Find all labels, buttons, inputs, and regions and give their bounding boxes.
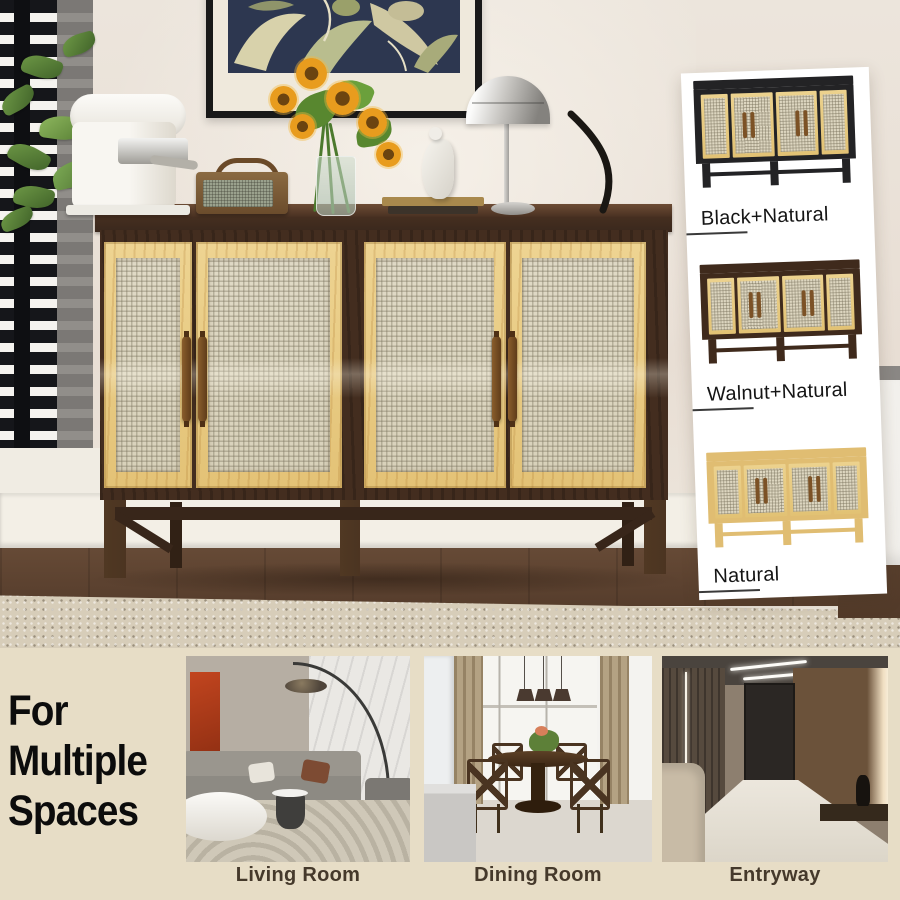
room-label-dining: Dining Room — [424, 864, 652, 890]
variant-thumbnail-natural — [706, 447, 870, 559]
product-image: Black+Natural — [0, 0, 900, 900]
sunflower — [270, 86, 297, 113]
door-handle[interactable] — [508, 336, 517, 422]
dr-chair-leg — [600, 804, 603, 833]
sunflower — [296, 58, 327, 89]
living-room-photo — [186, 656, 410, 862]
figurine — [422, 139, 454, 199]
room-label-entryway: Entryway — [662, 864, 888, 890]
en-vase — [856, 775, 870, 806]
variant-label: Black+Natural — [701, 203, 829, 230]
lr-pillow — [301, 759, 331, 784]
headline-line: Spaces — [8, 786, 179, 836]
room-label-living: Living Room — [186, 864, 410, 890]
dr-table-base — [515, 800, 561, 812]
mini-cabinet-body — [706, 456, 868, 524]
cabinet-stretcher — [115, 507, 652, 520]
mini-door — [832, 461, 861, 514]
dr-pendant-cord — [543, 656, 544, 691]
mini-cabinet-legs — [709, 518, 870, 552]
mini-cabinet-legs — [702, 334, 863, 368]
variant-option-walnut-natural[interactable]: Walnut+Natural — [687, 255, 875, 262]
dr-chair-leg — [497, 804, 500, 833]
mini-handle — [749, 292, 754, 318]
mini-handle — [755, 478, 760, 504]
stacked-book — [388, 206, 478, 214]
variant-underline — [693, 407, 754, 411]
dining-room-photo — [424, 656, 652, 862]
mini-handle — [801, 290, 806, 316]
door-handle[interactable] — [198, 336, 207, 422]
stacked-book — [382, 197, 484, 206]
plant-leaf — [60, 30, 98, 58]
variant-thumbnail-black — [693, 75, 857, 203]
plant-leaf — [0, 83, 39, 118]
variant-option-natural[interactable]: Natural — [694, 443, 882, 450]
mini-cabinet-legs — [696, 158, 857, 192]
mini-cabinet-body — [693, 84, 855, 164]
variant-label: Walnut+Natural — [707, 379, 848, 407]
figurine-head — [429, 127, 442, 140]
mini-handle — [803, 110, 808, 136]
mini-door — [714, 466, 743, 519]
door-handle[interactable] — [492, 336, 501, 422]
dr-table-pedestal — [531, 763, 545, 804]
lamp-stem — [504, 124, 509, 206]
lr-red-artwork — [190, 672, 219, 763]
mini-door — [701, 94, 730, 159]
mini-door — [707, 278, 736, 335]
mini-door — [819, 90, 848, 155]
glass-vase — [316, 156, 356, 216]
variant-underline — [699, 589, 760, 593]
mini-cabinet-body — [700, 268, 862, 340]
variant-card: Black+Natural — [681, 67, 887, 600]
variant-thumbnail-walnut — [700, 259, 864, 377]
lr-lamp-shade — [285, 679, 328, 693]
entryway-photo — [662, 656, 888, 862]
sunflower — [326, 82, 359, 115]
variant-label: Natural — [713, 563, 780, 588]
coffee-machine-tray — [66, 205, 190, 215]
headline-line: Multiple — [8, 736, 179, 786]
dr-counter — [424, 784, 476, 862]
en-console-shelf — [820, 804, 888, 820]
dr-pendant-cord — [561, 656, 562, 691]
headline-line: For — [8, 686, 179, 736]
lr-pillow — [248, 761, 275, 783]
mini-handle — [809, 290, 814, 316]
sunflower — [358, 108, 387, 137]
sunflower — [376, 142, 401, 167]
en-end-door — [746, 685, 793, 792]
en-sofa — [662, 763, 705, 862]
lamp-base — [491, 202, 535, 215]
variant-option-black-natural[interactable]: Black+Natural — [681, 71, 869, 78]
curved-decor — [555, 108, 625, 216]
plant-leaf — [5, 137, 52, 177]
lr-side-table — [276, 792, 305, 829]
footer-headline: For Multiple Spaces — [8, 686, 179, 836]
mini-handle — [742, 112, 747, 138]
sideboard-body — [100, 230, 668, 500]
mini-door — [826, 274, 855, 331]
door-handle[interactable] — [182, 336, 191, 422]
dr-chair — [570, 759, 610, 810]
dr-chair-leg — [577, 804, 580, 833]
variant-underline — [686, 231, 747, 235]
mini-handle — [757, 292, 762, 318]
dr-centerpiece — [529, 730, 559, 753]
sunflower — [290, 114, 315, 139]
mini-handle — [808, 476, 813, 502]
mini-handle — [795, 110, 800, 136]
mini-handle — [750, 112, 755, 138]
plant-leaf — [19, 50, 64, 84]
en-wall-led — [685, 672, 687, 771]
dr-pendant-cord — [524, 656, 525, 691]
mini-handle — [763, 478, 768, 504]
mini-handle — [816, 476, 821, 502]
